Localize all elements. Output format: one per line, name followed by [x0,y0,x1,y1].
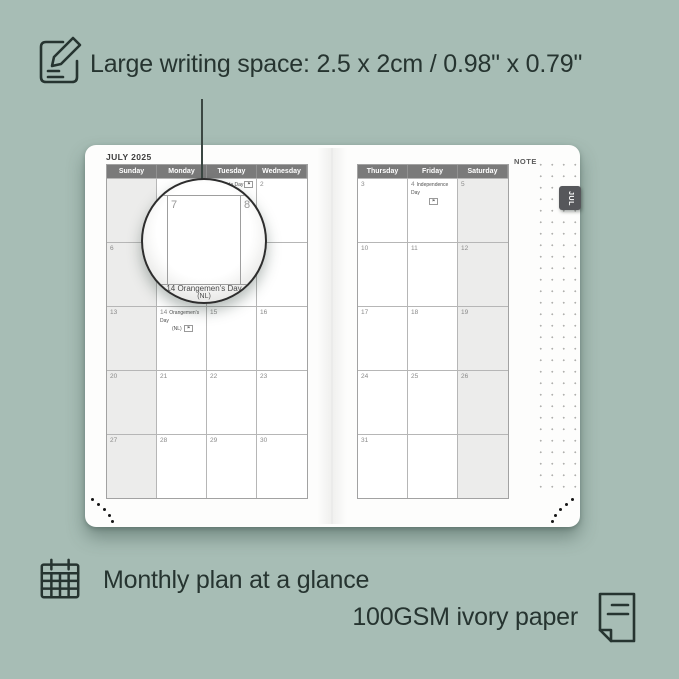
callout-pointer-line [201,99,203,179]
day-number: 5 [461,181,465,188]
product-image: Large writing space: 2.5 x 2cm / 0.98" x… [0,0,679,679]
day-number: 10 [361,245,368,252]
weekday-header: Wednesday [257,165,307,178]
calendar-day-cell: 10 [358,242,408,306]
day-number: 21 [160,373,167,380]
day-number: 18 [411,309,418,316]
corner-stitch-dot [111,520,114,523]
calendar-day-cell: 30 [257,434,307,498]
calendar-grid-icon [37,556,83,602]
paper-caption-text: 100GSM ivory paper [300,603,578,632]
calendar-day-cell [458,434,508,498]
day-number: 12 [461,245,468,252]
magnifier-lens: 7 8 14 Orangemen's Day (NL) [141,178,267,304]
calendar-day-cell: 22 [207,370,257,434]
flag-icon: ⚑ [184,325,193,332]
weekday-header: Saturday [458,165,508,178]
corner-stitch-dot [108,514,111,517]
day-number: 4 [411,181,415,188]
corner-stitch-dot [559,508,562,511]
day-number: 31 [361,437,368,444]
calendar-day-cell: 14Orangemen's Day(NL) ⚑ [157,306,207,370]
top-caption-text: Large writing space: 2.5 x 2cm / 0.98" x… [90,50,582,79]
calendar-day-cell: 21 [157,370,207,434]
holiday-label-line2: (NL) ⚑ [160,325,205,333]
calendar-day-cell: 18 [408,306,458,370]
weekday-header: Tuesday [207,165,257,178]
calendar-day-cell: 28 [157,434,207,498]
magnified-grid-line [240,195,241,284]
calendar-day-cell: 23 [257,370,307,434]
corner-stitch-dot [565,503,568,506]
day-number: 22 [210,373,217,380]
weekday-header: Friday [408,165,458,178]
flag-icon: ⚑ [429,198,438,205]
day-number: 24 [361,373,368,380]
magnified-grid-line [167,195,168,284]
day-number: 30 [260,437,267,444]
day-number: 6 [110,245,114,252]
monthly-caption-text: Monthly plan at a glance [103,566,369,595]
calendar-day-cell: 25 [408,370,458,434]
calendar-day-cell: 31 [358,434,408,498]
calendar-day-cell: 29 [207,434,257,498]
calendar-day-cell: 5 [458,178,508,242]
calendar-day-cell: 15 [207,306,257,370]
weekday-header: Sunday [107,165,157,178]
day-number: 16 [260,309,267,316]
corner-stitch-dot [554,514,557,517]
weekday-header: Monday [157,165,207,178]
day-number: 25 [411,373,418,380]
paper-sheet-icon [594,592,638,646]
calendar-day-cell: 11 [408,242,458,306]
calendar-grid-right-page: ThursdayFridaySaturday34Independence Day… [357,164,509,499]
day-number: 19 [461,309,468,316]
calendar-day-cell: 26 [458,370,508,434]
calendar-day-cell: 16 [257,306,307,370]
day-number: 15 [210,309,217,316]
calendar-day-cell: 4Independence Day⚑ [408,178,458,242]
day-number: 17 [361,309,368,316]
magnified-day-number: 8 [244,199,250,211]
day-number: 29 [210,437,217,444]
corner-stitch-dot [97,503,100,506]
calendar-day-cell: 27 [107,434,157,498]
magnified-holiday-text: 14 Orangemen's Day [143,284,265,293]
pencil-note-icon [36,35,84,85]
magnified-holiday-text2: (NL) [143,293,265,300]
day-number: 23 [260,373,267,380]
day-number: 2 [260,181,264,188]
day-number: 26 [461,373,468,380]
corner-stitch-dot [91,498,94,501]
day-number: 20 [110,373,117,380]
corner-stitch-dot [103,508,106,511]
flag-icon: ⚑ [244,181,253,188]
month-tab: JUL [559,186,581,210]
calendar-day-cell: 20 [107,370,157,434]
day-number: 27 [110,437,117,444]
month-tab-label: JUL [566,191,573,206]
calendar-day-cell: 12 [458,242,508,306]
day-number: 28 [160,437,167,444]
corner-stitch-dot [551,520,554,523]
magnified-grid-line [143,195,265,196]
corner-stitch-dot [571,498,574,501]
calendar-day-cell: 19 [458,306,508,370]
day-number: 14 [160,309,167,316]
weekday-header: Thursday [358,165,408,178]
calendar-day-cell: 24 [358,370,408,434]
day-number: 13 [110,309,117,316]
magnified-day-number: 7 [171,199,177,211]
day-number: 11 [411,245,418,252]
month-title: JULY 2025 [106,152,152,162]
calendar-day-cell: 3 [358,178,408,242]
calendar-day-cell [408,434,458,498]
page-gutter [331,148,333,524]
day-number: 3 [361,181,365,188]
holiday-label: Independence Day [411,182,448,196]
calendar-day-cell: 13 [107,306,157,370]
calendar-day-cell: 17 [358,306,408,370]
